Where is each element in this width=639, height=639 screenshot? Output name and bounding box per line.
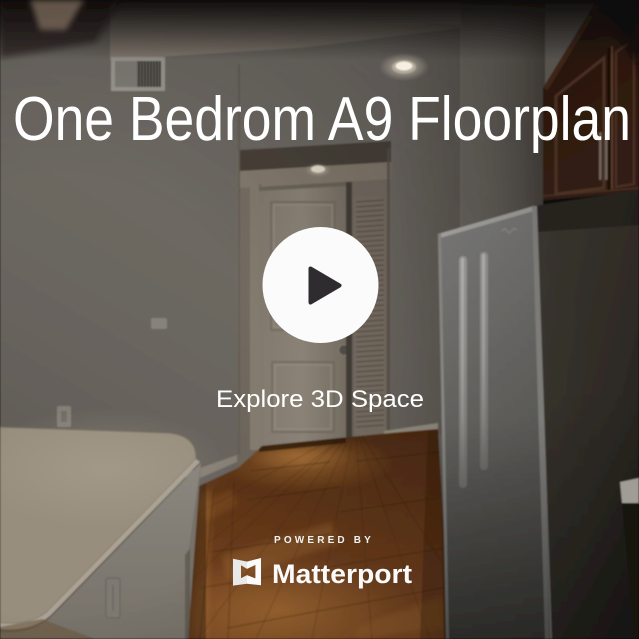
svg-text:POWERED BY: POWERED BY	[274, 535, 373, 546]
svg-text:One Bedrom A9 Floorplan: One Bedrom A9 Floorplan	[13, 85, 631, 154]
svg-text:Matterport: Matterport	[272, 559, 412, 589]
svg-text:Explore 3D Space: Explore 3D Space	[216, 386, 424, 413]
